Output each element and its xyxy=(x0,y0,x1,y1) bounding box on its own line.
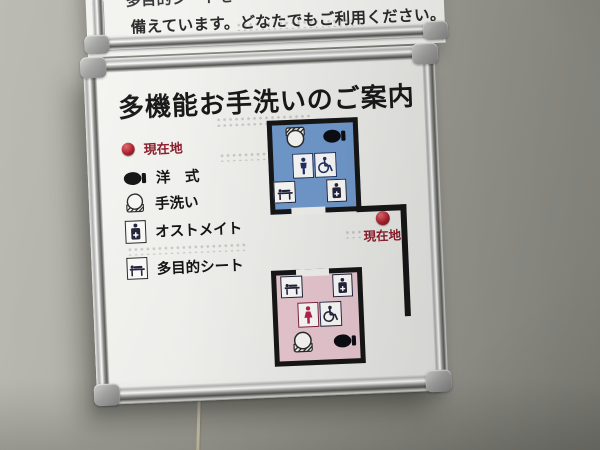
multipurpose-sheet-icon xyxy=(276,183,294,201)
current-location-dot-icon xyxy=(121,142,135,156)
wheelchair-icon xyxy=(321,304,340,324)
ostomate-icon xyxy=(335,276,350,295)
sink-icon xyxy=(124,192,147,215)
legend-label: 洋 式 xyxy=(155,165,199,188)
sign-board: 多機能お手洗いのご案内 現在地 洋 式 手洗い オストメイト xyxy=(96,59,435,387)
male-pictogram-icon xyxy=(296,156,311,176)
frame-corner-cap xyxy=(425,369,452,392)
frame-corner-cap xyxy=(423,20,449,40)
sink-icon xyxy=(290,330,315,355)
legend-item-western-toilet: 洋 式 xyxy=(122,165,199,189)
legend-label: オストメイト xyxy=(155,217,243,242)
ostomate-icon xyxy=(329,181,344,200)
sink-icon xyxy=(283,124,308,149)
floor-plan-map: 現在地 xyxy=(254,109,447,378)
legend-item-ostomate: オストメイト xyxy=(125,216,243,244)
frame-corner-cap xyxy=(94,383,121,406)
hanging-wire xyxy=(196,398,200,450)
multipurpose-sheet-icon xyxy=(128,260,146,278)
door-opening xyxy=(291,207,325,215)
legend-label: 手洗い xyxy=(155,190,199,213)
wheelchair-icon xyxy=(316,155,335,175)
photo-scene: 多目的シートを 備えています。どなたでもご利用ください。 多機能お手洗いのご案内… xyxy=(0,0,600,450)
legend-item-current-location: 現在地 xyxy=(121,137,183,159)
corridor-wall xyxy=(400,204,411,316)
ostomate-icon xyxy=(128,222,144,242)
frame-corner-cap xyxy=(80,57,107,79)
legend-label: 現在地 xyxy=(143,137,183,158)
legend-label: 多目的シート xyxy=(156,253,244,278)
female-pictogram-icon xyxy=(300,305,316,325)
western-toilet-icon xyxy=(333,332,358,349)
current-location-label: 現在地 xyxy=(363,224,401,245)
frame-corner-cap xyxy=(412,43,439,65)
western-toilet-icon xyxy=(322,128,347,145)
legend-item-sink: 手洗い xyxy=(124,190,199,215)
legend-item-multipurpose-sheet: 多目的シート xyxy=(126,253,244,280)
frame-corner-cap xyxy=(84,35,110,55)
braille-dots xyxy=(345,230,361,239)
western-toilet-icon xyxy=(123,169,148,186)
current-location-dot xyxy=(376,211,391,226)
multipurpose-sheet-icon xyxy=(283,278,301,296)
main-sign: 多機能お手洗いのご案内 現在地 洋 式 手洗い オストメイト xyxy=(83,45,449,405)
